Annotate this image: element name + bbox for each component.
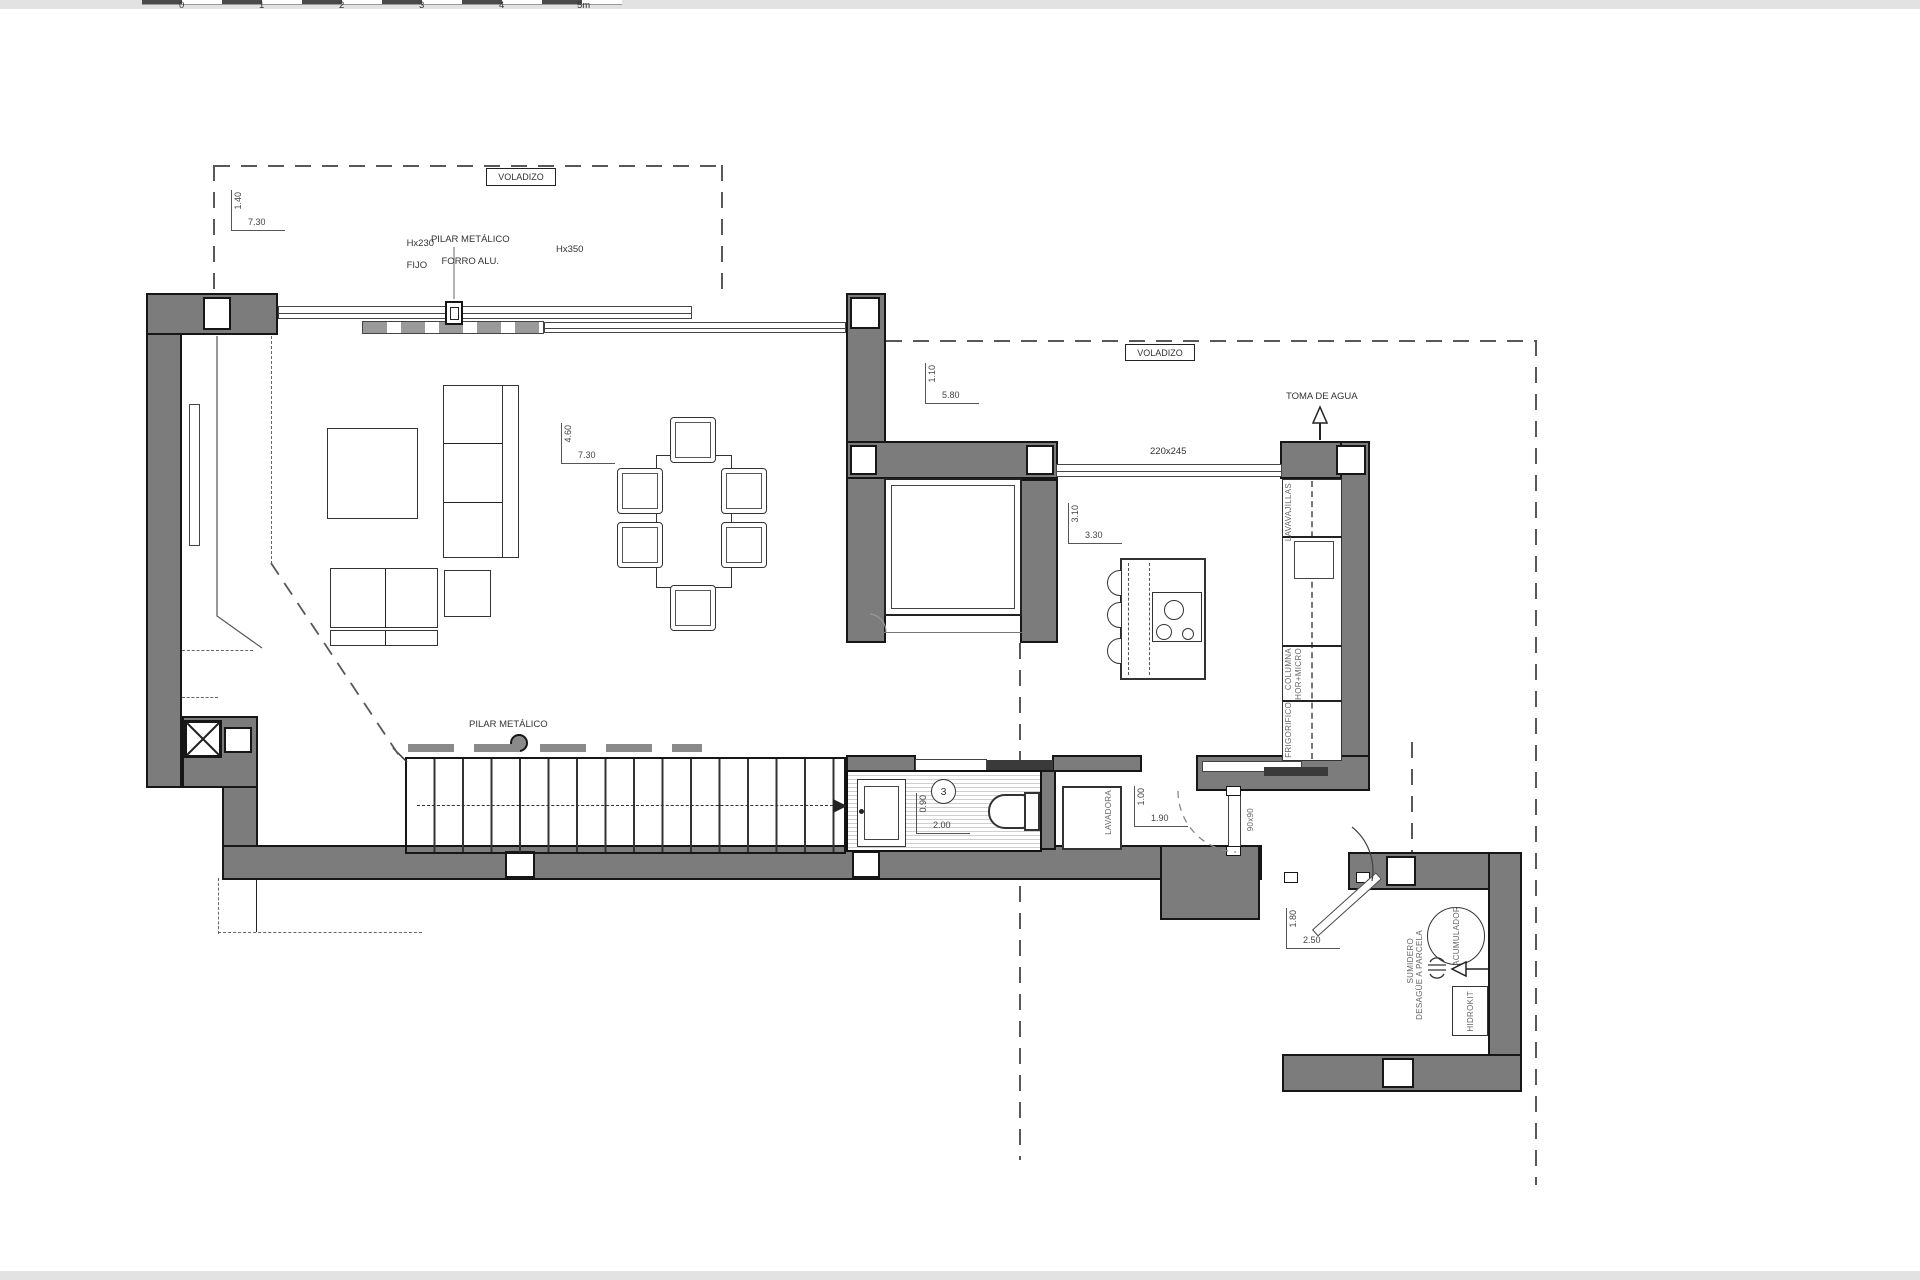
dim-laundry: 1.00 1.90 bbox=[1134, 786, 1196, 830]
section-line-vertical bbox=[1019, 643, 1021, 1160]
fridge-label: FRIGORIFICO bbox=[1284, 702, 1293, 758]
dim-voladizo-left: 1.40 7.30 bbox=[231, 190, 293, 234]
floor-edge-dash-2 bbox=[182, 697, 218, 698]
dim-living: 4.60 7.30 bbox=[561, 423, 623, 467]
door-cap bbox=[1226, 786, 1241, 796]
sofa-front-edge bbox=[330, 630, 438, 646]
door-cap bbox=[1284, 872, 1298, 883]
column-block bbox=[850, 445, 877, 475]
pillar-inner bbox=[450, 307, 459, 320]
sofa-vertical bbox=[443, 385, 504, 558]
counter-centerline bbox=[1311, 481, 1313, 759]
sliding-door-leaf-kitchen bbox=[1264, 767, 1328, 776]
dining-chair bbox=[617, 468, 663, 514]
counter-divider bbox=[1282, 645, 1342, 647]
column-block bbox=[1386, 856, 1416, 886]
projection-line-entrance bbox=[1411, 742, 1413, 854]
door-90x90-leaf bbox=[1228, 790, 1241, 850]
wall-patio-right bbox=[1020, 479, 1058, 643]
pillar-label-bottom: PILAR METÁLICO bbox=[469, 720, 548, 731]
window-hx230-label: Hx230 FIJO bbox=[396, 228, 434, 272]
dining-chair bbox=[721, 468, 767, 514]
door-cap bbox=[1226, 846, 1241, 856]
dim-value-vertical: 4.60 bbox=[563, 425, 573, 443]
dim-value-horizontal: 5.80 bbox=[942, 390, 960, 400]
dishwasher-label: LAVAVAJILLAS bbox=[1284, 483, 1293, 541]
floor-edge-dash-1 bbox=[182, 650, 253, 651]
scale-tick-5m: 5m bbox=[577, 1, 590, 12]
water-intake-label: TOMA DE AGUA bbox=[1286, 392, 1358, 403]
terrace-outline-left bbox=[218, 878, 219, 934]
ottoman bbox=[444, 570, 491, 617]
sofa-cushion-line bbox=[385, 569, 386, 627]
facade-inner-line bbox=[217, 336, 262, 648]
window-midline bbox=[1057, 471, 1281, 472]
pillar-label-line2: FORRO ALU. bbox=[442, 256, 500, 267]
toilet-tank bbox=[1024, 792, 1040, 831]
toilet-bowl bbox=[988, 794, 1026, 829]
window-midline bbox=[279, 313, 691, 314]
window-hx350 bbox=[544, 322, 846, 333]
terrace-outline-bottom bbox=[218, 932, 422, 933]
wall-bath-laundry-divider bbox=[1040, 770, 1056, 850]
radiator bbox=[189, 404, 200, 546]
oven-column-label-1: COLUMNA bbox=[1284, 648, 1293, 690]
patio-shaft-inner bbox=[891, 485, 1015, 609]
washing-machine bbox=[1062, 786, 1122, 850]
sofa-horizontal bbox=[330, 568, 438, 628]
wall-kitchen-right bbox=[1340, 441, 1370, 791]
washing-machine-label: LAVADORA bbox=[1104, 790, 1113, 835]
dining-chair bbox=[617, 522, 663, 568]
kitchen-sink bbox=[1294, 541, 1334, 579]
dim-value-horizontal: 1.90 bbox=[1151, 813, 1169, 823]
dim-bathroom: 0.90 2.00 bbox=[916, 793, 978, 837]
stairs-rail-dashes bbox=[408, 744, 702, 752]
scale-tick-4: 4 bbox=[499, 1, 504, 12]
hx230-line1: Hx230 bbox=[407, 238, 434, 249]
hidrokit-label: HIDROKIT bbox=[1466, 991, 1475, 1032]
sofa-cushion-line bbox=[444, 502, 503, 503]
page-bottom-strip bbox=[0, 1271, 1920, 1280]
column-block bbox=[1382, 1058, 1414, 1088]
wall-bath-top-right bbox=[1052, 755, 1142, 772]
dim-value-horizontal: 7.30 bbox=[248, 217, 266, 227]
hx230-line2: FIJO bbox=[407, 260, 428, 271]
scale-tick-1: 1 bbox=[259, 1, 264, 12]
window-kitchen-220x245 bbox=[1056, 464, 1282, 477]
dim-value-vertical: 1.00 bbox=[1136, 788, 1146, 806]
patio-sill-line bbox=[884, 632, 1022, 633]
column-block bbox=[850, 297, 880, 329]
dim-value-horizontal: 3.30 bbox=[1085, 530, 1103, 540]
dim-techroom: 1.80 2.50 bbox=[1286, 908, 1348, 952]
voladizo-right-label: VOLADIZO bbox=[1137, 348, 1183, 358]
dim-value-vertical: 1.40 bbox=[233, 192, 243, 210]
wall-left bbox=[146, 333, 182, 788]
coffee-table bbox=[327, 428, 418, 519]
water-intake-arrow-head bbox=[1313, 407, 1327, 423]
wall-bottom-step bbox=[1160, 845, 1260, 920]
oven-column-label-2: HOR+MICRO bbox=[1294, 648, 1303, 700]
dim-value-vertical: 1.80 bbox=[1288, 910, 1298, 928]
voladizo-left-label-box: VOLADIZO bbox=[486, 168, 556, 186]
scale-tick-3: 3 bbox=[419, 1, 424, 12]
voladizo-right-label-box: VOLADIZO bbox=[1125, 344, 1195, 361]
sofa-backrest bbox=[502, 385, 519, 558]
sofa-cushion-line bbox=[385, 631, 386, 645]
voladizo-left-label: VOLADIZO bbox=[498, 172, 544, 182]
drain-label-2: DESAGÜE A PARCELA bbox=[1415, 930, 1424, 1020]
sofa-cushion-line bbox=[444, 443, 503, 444]
metal-pillar-symbol bbox=[445, 301, 463, 325]
terrace-edge-line bbox=[256, 880, 257, 932]
column-block bbox=[852, 851, 880, 878]
pillar-label-line1: PILAR METÁLICO bbox=[431, 234, 510, 245]
accumulator-label: ACUMULADOR bbox=[1452, 906, 1461, 966]
shaft-x-box bbox=[184, 720, 222, 758]
window-hx350-label: Hx350 bbox=[556, 245, 583, 256]
stairs-walkline bbox=[417, 805, 833, 806]
dim-voladizo-right: 1.10 5.80 bbox=[925, 363, 987, 407]
patio-shaft bbox=[884, 478, 1022, 616]
wall-left-step bbox=[222, 786, 258, 848]
dim-value-horizontal: 2.00 bbox=[933, 820, 951, 830]
window-living-fixed bbox=[278, 306, 692, 319]
upper-floor-edge-dashed bbox=[271, 336, 272, 564]
dining-chair bbox=[670, 585, 716, 631]
window-220x245-label: 220x245 bbox=[1150, 447, 1186, 458]
floor-plan: 0 1 2 3 4 5m VOLADIZO VOLADIZO bbox=[0, 0, 1920, 1280]
burner bbox=[1156, 624, 1172, 640]
island-overhang-dashed bbox=[1128, 563, 1150, 675]
voladizo-right-outline-right bbox=[1535, 340, 1537, 1185]
bathroom-sink-basin bbox=[864, 786, 899, 840]
scale-bar bbox=[142, 0, 622, 5]
dim-kitchen: 3.10 3.30 bbox=[1068, 503, 1130, 547]
dim-value-vertical: 3.10 bbox=[1070, 505, 1080, 523]
voladizo-left-outline-right bbox=[721, 165, 723, 293]
accumulator-tank: ACUMULADOR bbox=[1427, 907, 1485, 965]
burner bbox=[1182, 628, 1194, 640]
column-block bbox=[1026, 445, 1054, 475]
dim-value-horizontal: 7.30 bbox=[578, 450, 596, 460]
drain-label-1: SUMIDERO bbox=[1406, 938, 1415, 984]
dining-chair bbox=[670, 417, 716, 463]
voladizo-left-outline-left bbox=[213, 165, 215, 295]
voladizo-right-outline-top bbox=[886, 340, 1536, 342]
dining-chair bbox=[721, 522, 767, 568]
window-midline bbox=[545, 328, 845, 329]
dim-value-vertical: 1.10 bbox=[927, 365, 937, 383]
scale-tick-0: 0 bbox=[179, 1, 184, 12]
dim-value-horizontal: 2.50 bbox=[1303, 935, 1321, 945]
faucet-dot bbox=[859, 809, 864, 814]
dim-value-vertical: 0.90 bbox=[918, 795, 928, 813]
hidrokit-unit: HIDROKIT bbox=[1452, 986, 1488, 1036]
burner bbox=[1164, 600, 1184, 620]
door-90x90-label: 90x90 bbox=[1246, 808, 1255, 831]
column-block bbox=[1336, 445, 1366, 475]
column-block bbox=[203, 297, 231, 330]
scale-tick-2: 2 bbox=[339, 1, 344, 12]
column-block bbox=[224, 727, 252, 753]
voladizo-left-outline-top bbox=[214, 165, 722, 167]
column-block bbox=[505, 851, 535, 878]
pocket-door-leaf bbox=[987, 760, 1053, 770]
